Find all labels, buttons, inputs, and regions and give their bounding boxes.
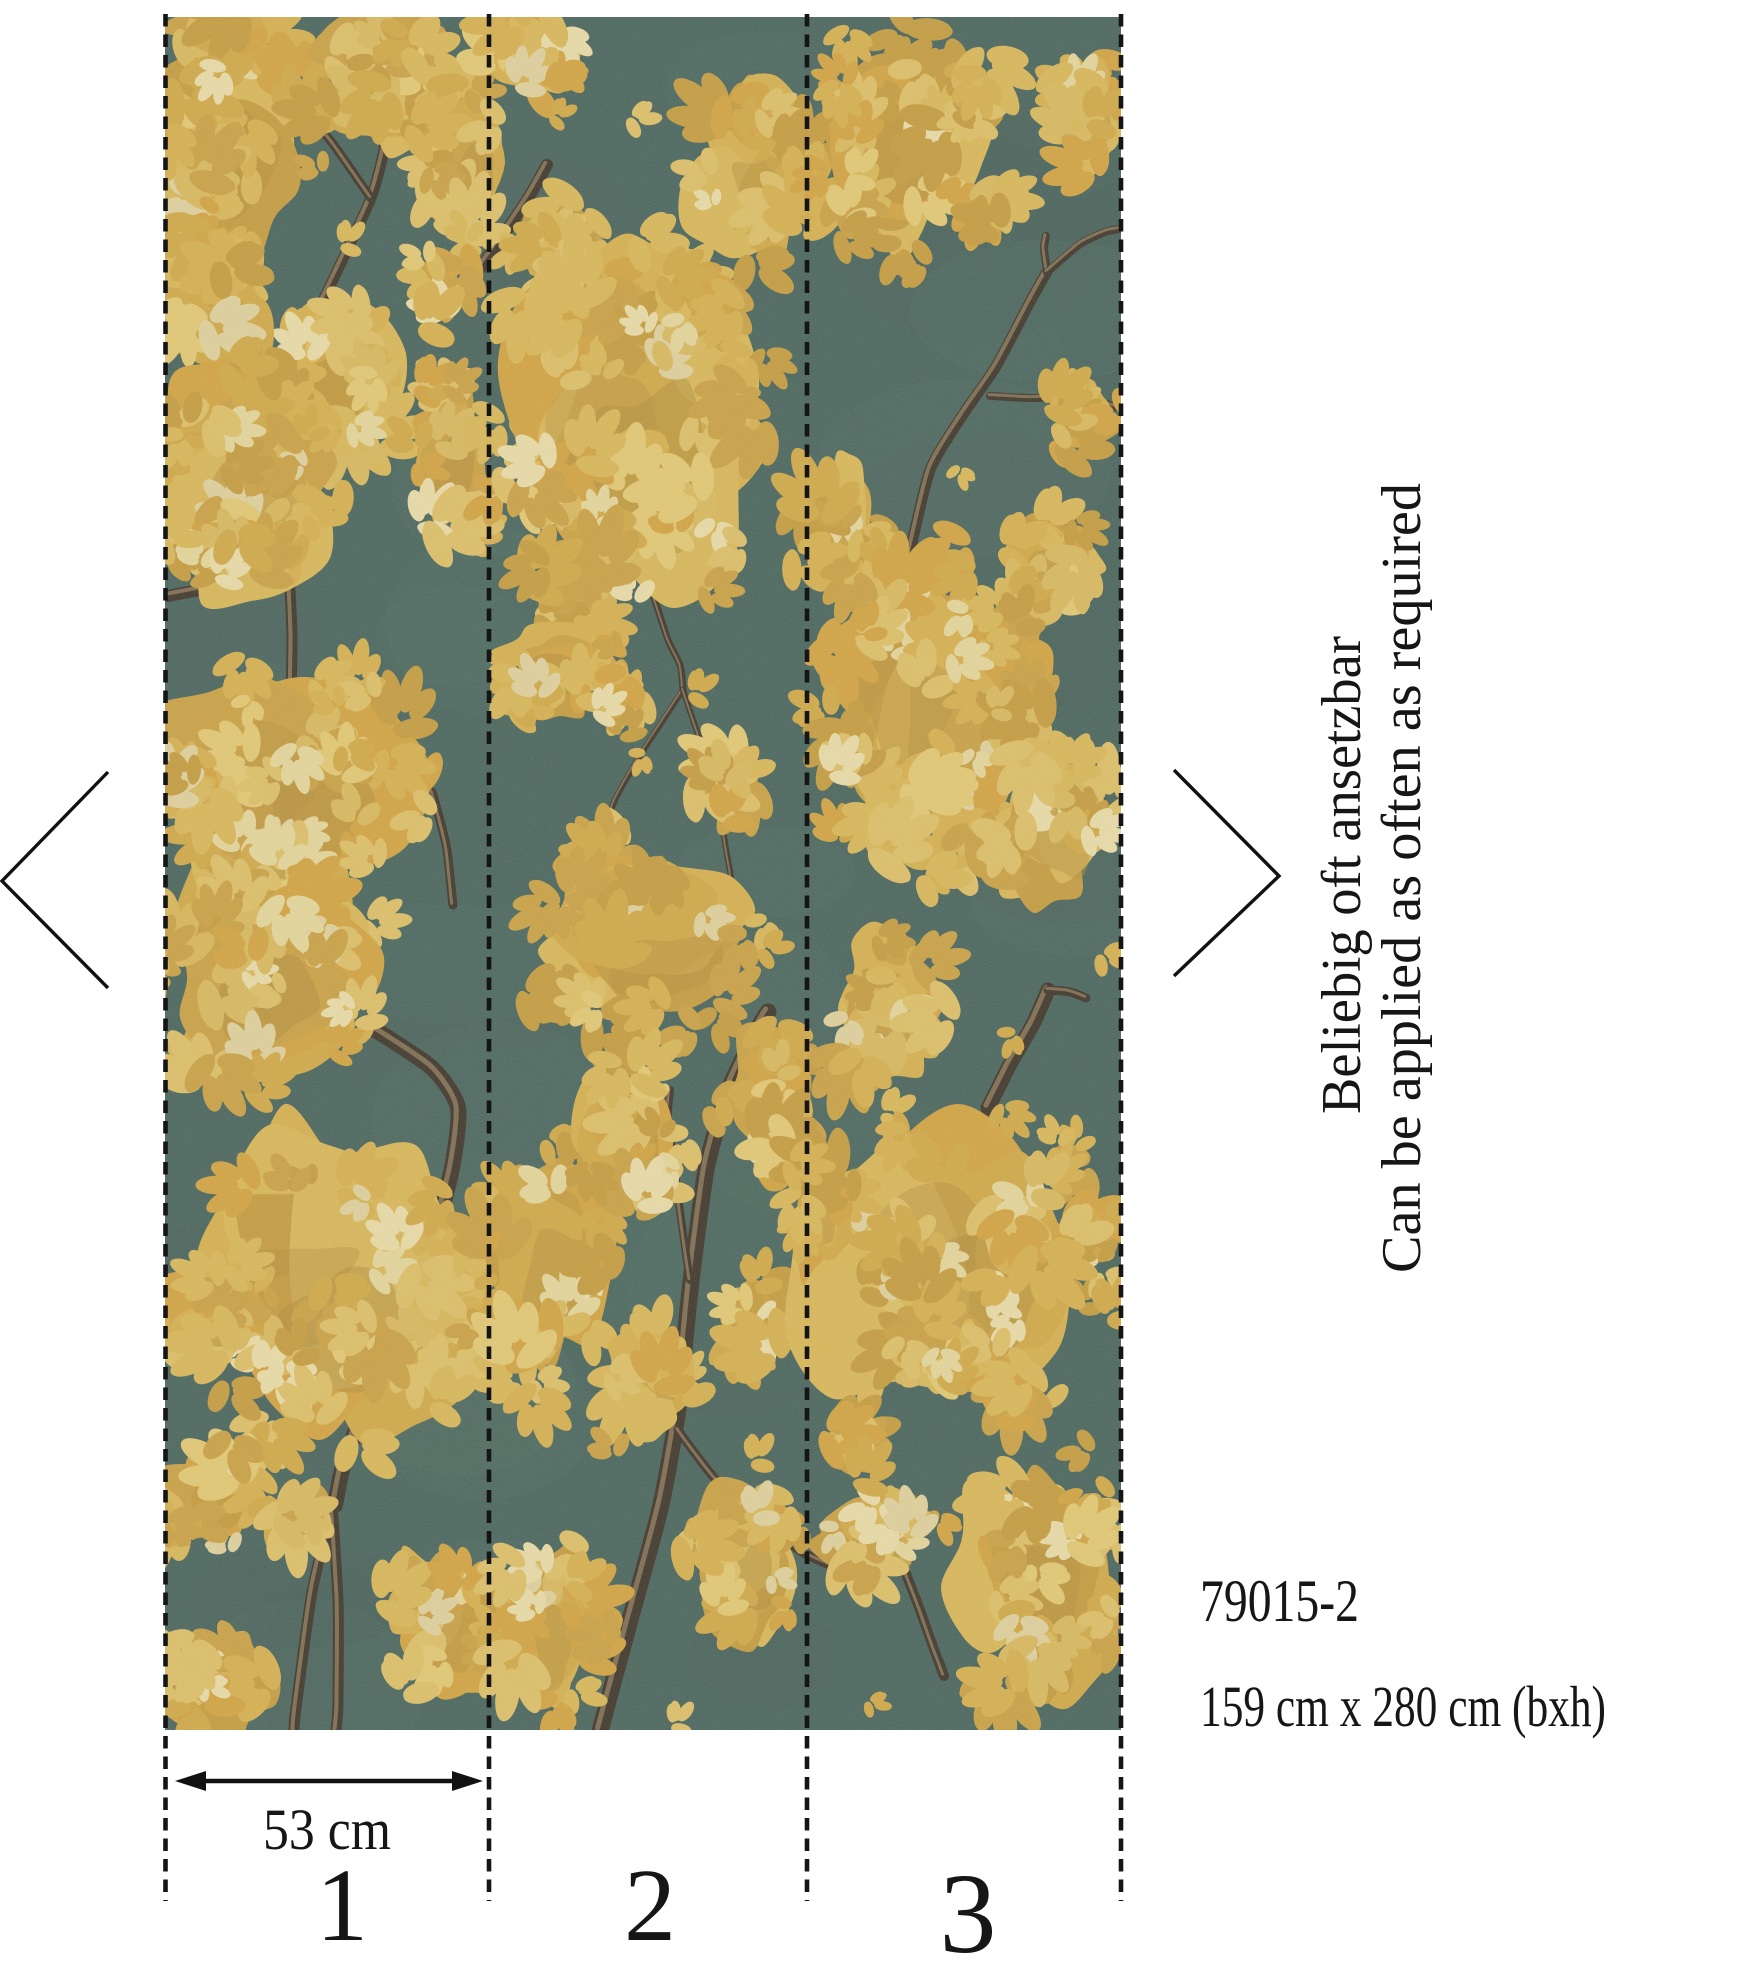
svg-text:2: 2 — [624, 1848, 676, 1960]
svg-text:3: 3 — [940, 1850, 997, 1960]
svg-text:Can be applied as often as req: Can be applied as often as required — [1371, 483, 1433, 1273]
svg-text:1: 1 — [316, 1848, 368, 1960]
svg-text:79015-2: 79015-2 — [1200, 1568, 1359, 1634]
svg-text:159 cm x 280 cm (bxh): 159 cm x 280 cm (bxh) — [1200, 1674, 1606, 1739]
svg-text:Beliebig oft ansetzbar: Beliebig oft ansetzbar — [1311, 636, 1373, 1114]
